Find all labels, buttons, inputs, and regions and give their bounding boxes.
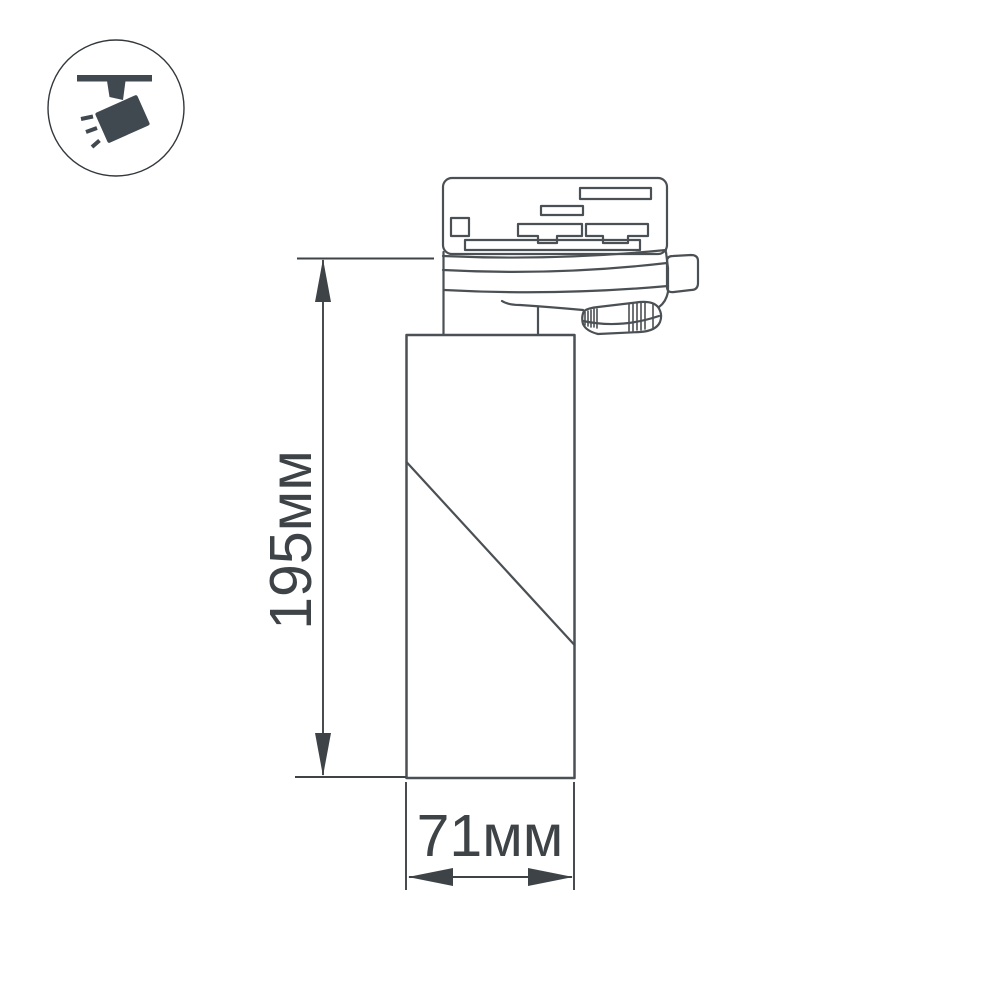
arrow-left-icon: [408, 868, 453, 886]
product-dimension-page: 195мм 71мм: [0, 0, 1000, 1000]
height-dimension-label: 195мм: [258, 450, 324, 630]
lamp-cylinder: [407, 335, 575, 778]
track-adapter: [443, 178, 698, 335]
corner-badge: [48, 40, 184, 176]
width-dimension-label: 71мм: [417, 803, 564, 869]
knob-ribs-left: [585, 309, 597, 328]
adapter-base-bar: [465, 240, 640, 250]
arrow-down-icon: [315, 733, 331, 776]
neck-line: [502, 301, 583, 310]
collar-line-mid: [443, 263, 667, 272]
arrow-right-icon: [528, 868, 573, 886]
track-rail-shape: [77, 75, 152, 82]
fixture-drawing: [407, 178, 699, 778]
lamp-seam-diagonal: [407, 462, 575, 645]
lamp-body: [407, 335, 575, 778]
technical-drawing-svg: 195мм 71мм: [0, 0, 1000, 1000]
knob-ribs-right: [629, 303, 653, 331]
adjustment-knob: [582, 302, 661, 334]
collar-line-bottom: [444, 286, 668, 292]
adapter-square-contact: [451, 218, 469, 236]
adapter-slot-small: [541, 206, 583, 215]
adapter-slot-long: [580, 188, 651, 199]
adapter-side-tab: [667, 255, 698, 292]
width-dimension: 71мм: [406, 782, 574, 890]
arrow-up-icon: [315, 259, 331, 302]
